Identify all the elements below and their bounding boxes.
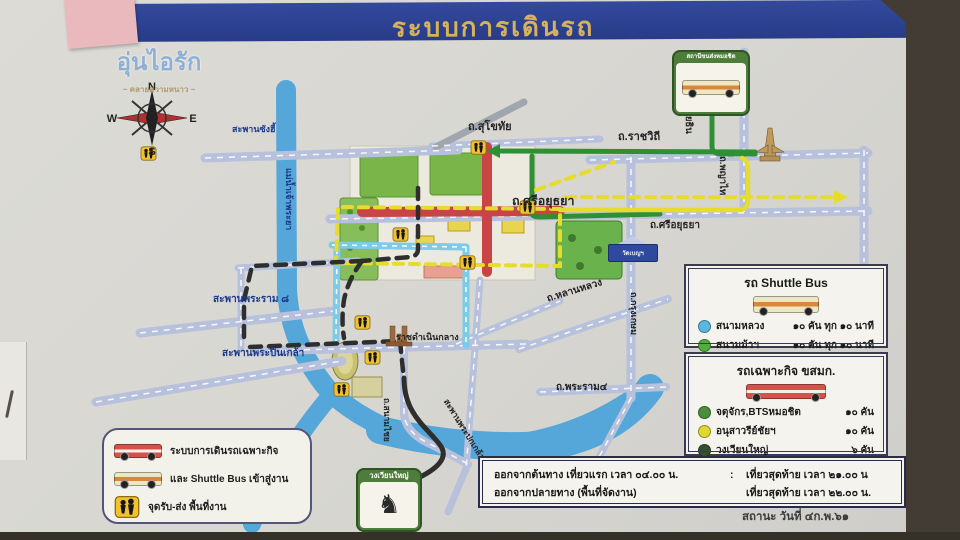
event-logo-subtitle: ~ คลายความหนาว ~: [84, 83, 234, 96]
schedule-box: ออกจากต้นทาง เที่ยวแรก เวลา ๐๔.๐๐ น. : เ…: [478, 456, 906, 508]
temple-sign-label: วัดเบญฯ: [622, 248, 644, 258]
bmta-legend: รถเฉพาะกิจ ขสมก. จตุจักร,BTSหมอชิต ๑๐ คั…: [684, 352, 888, 456]
shuttle-place: สนามหลวง: [716, 319, 764, 334]
shuttle-bus-icon: [753, 296, 819, 313]
mochit-bus-picture: [676, 63, 746, 112]
side-paper-corner: [0, 342, 27, 460]
blue-route-dot-icon: [698, 320, 711, 333]
bmta-place: อนุสาวรีย์ชัยฯ: [716, 424, 776, 439]
schedule-return-last: เที่ยวสุดท้าย เวลา ๒๒.๐๐ น.: [746, 484, 890, 502]
label-ratchawithi-road: ถ.ราชวิถี: [618, 127, 660, 145]
label-phayathai-road: ถ.พญาไท: [715, 156, 730, 195]
shuttle-detail: ๑๐ คัน ทุก ๑๐ นาที: [793, 319, 874, 334]
title-banner: ระบบการเดินรถ: [78, 0, 908, 42]
bmta-row-chatuchak: จตุจักร,BTSหมอชิต ๑๐ คัน: [698, 405, 874, 420]
label-sukhothai-road: ถ.สุโขทัย: [468, 117, 512, 135]
schedule-row-2: ออกจากปลายทาง (พื้นที่จัดงาน) เที่ยวสุดท…: [494, 484, 890, 502]
yellow-route-dot-icon: [698, 425, 711, 438]
red-bus-icon: [114, 444, 162, 458]
shuttle-legend-title: รถ Shuttle Bus: [698, 274, 874, 293]
bmta-detail: ๑๐ คัน: [845, 405, 874, 420]
legend-text: จุดรับ-ส่ง พื้นที่งาน: [148, 500, 227, 515]
label-pinklao-bridge: สะพานพระปิ่นเกล้า: [222, 346, 304, 361]
temple-sign: วัดเบญฯ: [608, 244, 658, 262]
schedule-origin-first: ออกจากต้นทาง เที่ยวแรก เวลา ๐๔.๐๐ น.: [494, 466, 730, 484]
pickup-sign-icon: [114, 495, 140, 519]
green-route-dot-icon: [698, 406, 711, 419]
event-logo-name: อุ่นไอรัก: [84, 42, 234, 81]
green-route-dot-icon: [698, 339, 711, 352]
victory-monument-icon: [756, 128, 784, 161]
shuttle-bus-legend: รถ Shuttle Bus สนามหลวง ๑๐ คัน ทุก ๑๐ นา…: [684, 264, 888, 348]
shuttle-bus-icon: [114, 472, 162, 486]
event-logo: อุ่นไอรัก ~ คลายความหนาว ~: [84, 42, 234, 102]
temple-sign-roof-icon: [618, 236, 646, 244]
label-rama4-road: ถ.พระราม๔: [556, 380, 607, 395]
label-rama8-bridge: สะพานพระราม ๘: [213, 292, 289, 307]
mochit-terminal-box: สถานีขนส่งหมอชิต: [672, 50, 750, 116]
bus-icon: [682, 80, 740, 95]
label-krung-kasem-road: ถ.กรุงเกษม: [627, 292, 641, 335]
schedule-row-1: ออกจากต้นทาง เที่ยวแรก เวลา ๐๔.๐๐ น. : เ…: [494, 466, 890, 484]
compass-w: W: [107, 113, 118, 125]
shuttle-place: สนามม้าฯ: [716, 338, 759, 353]
legend-row-pickup: จุดรับ-ส่ง พื้นที่งาน: [114, 493, 300, 521]
label-ratchadamnoen-klang: ราชดำเนินกลาง: [396, 330, 459, 344]
status-date: สถานะ วันที่ ๔ก.พ.๖๑: [742, 508, 922, 526]
table-surface-bottom: [0, 532, 960, 540]
mochit-terminal-label: สถานีขนส่งหมอชิต: [676, 54, 746, 61]
schedule-return: ออกจากปลายทาง (พื้นที่จัดงาน): [494, 484, 730, 502]
compass-e: E: [189, 113, 196, 125]
label-saphan-sanghi: สะพานซังฮี้: [232, 122, 275, 136]
shuttle-detail: ๑๐ คัน ทุก ๑๐ นาที: [793, 338, 874, 353]
compass-s: S: [148, 146, 155, 158]
route-yellow-arrow: [834, 190, 848, 204]
taksin-statue-picture: [360, 482, 418, 528]
label-si-ayutthaya-road-east: ถ.ศรีอยุธยา: [650, 218, 700, 233]
bmta-row-victory: อนุสาวรีย์ชัยฯ ๑๐ คัน: [698, 424, 874, 439]
table-surface-right: [906, 0, 960, 540]
photo-of-transport-map: N E S W ระบบการเดินรถ อุ่นไอรัก ~ คลายคว…: [0, 0, 960, 540]
bmta-legend-title: รถเฉพาะกิจ ขสมก.: [698, 362, 874, 381]
wongwian-yai-label: วงเวียนใหญ่: [360, 472, 418, 480]
legend-text: และ Shuttle Bus เข้าสู่งาน: [170, 472, 288, 487]
horse-statue-icon: [377, 490, 400, 520]
legend-text: ระบบการเดินรถเฉพาะกิจ: [170, 444, 278, 459]
shuttle-row-sanam-luang: สนามหลวง ๑๐ คัน ทุก ๑๐ นาที: [698, 319, 874, 334]
schedule-separator: :: [730, 466, 746, 484]
wongwian-yai-box: วงเวียนใหญ่: [356, 468, 422, 532]
bmta-bus-icon: [746, 384, 826, 399]
label-si-ayutthaya-road-west: ถ.ศรีอยุธยา: [512, 191, 575, 211]
bmta-place: จตุจักร,BTSหมอชิต: [716, 405, 801, 420]
bmta-detail: ๑๐ คัน: [845, 424, 874, 439]
shuttle-row-racecourse: สนามม้าฯ ๑๐ คัน ทุก ๑๐ นาที: [698, 338, 874, 353]
legend-row-shuttle: และ Shuttle Bus เข้าสู่งาน: [114, 465, 300, 493]
schedule-origin-last: เที่ยวสุดท้าย เวลา ๒๑.๐๐ น: [746, 466, 890, 484]
pink-sticky-note: [64, 0, 138, 49]
label-sanam-chai-road: ถ.สนามไชย: [380, 398, 394, 442]
label-chao-phraya-river: แม่น้ำเจ้าพระยา: [282, 168, 296, 230]
routes-legend: ระบบการเดินรถเฉพาะกิจ และ Shuttle Bus เข…: [102, 428, 312, 524]
schedule-spacer: [730, 484, 746, 502]
legend-row-special: ระบบการเดินรถเฉพาะกิจ: [114, 437, 300, 465]
